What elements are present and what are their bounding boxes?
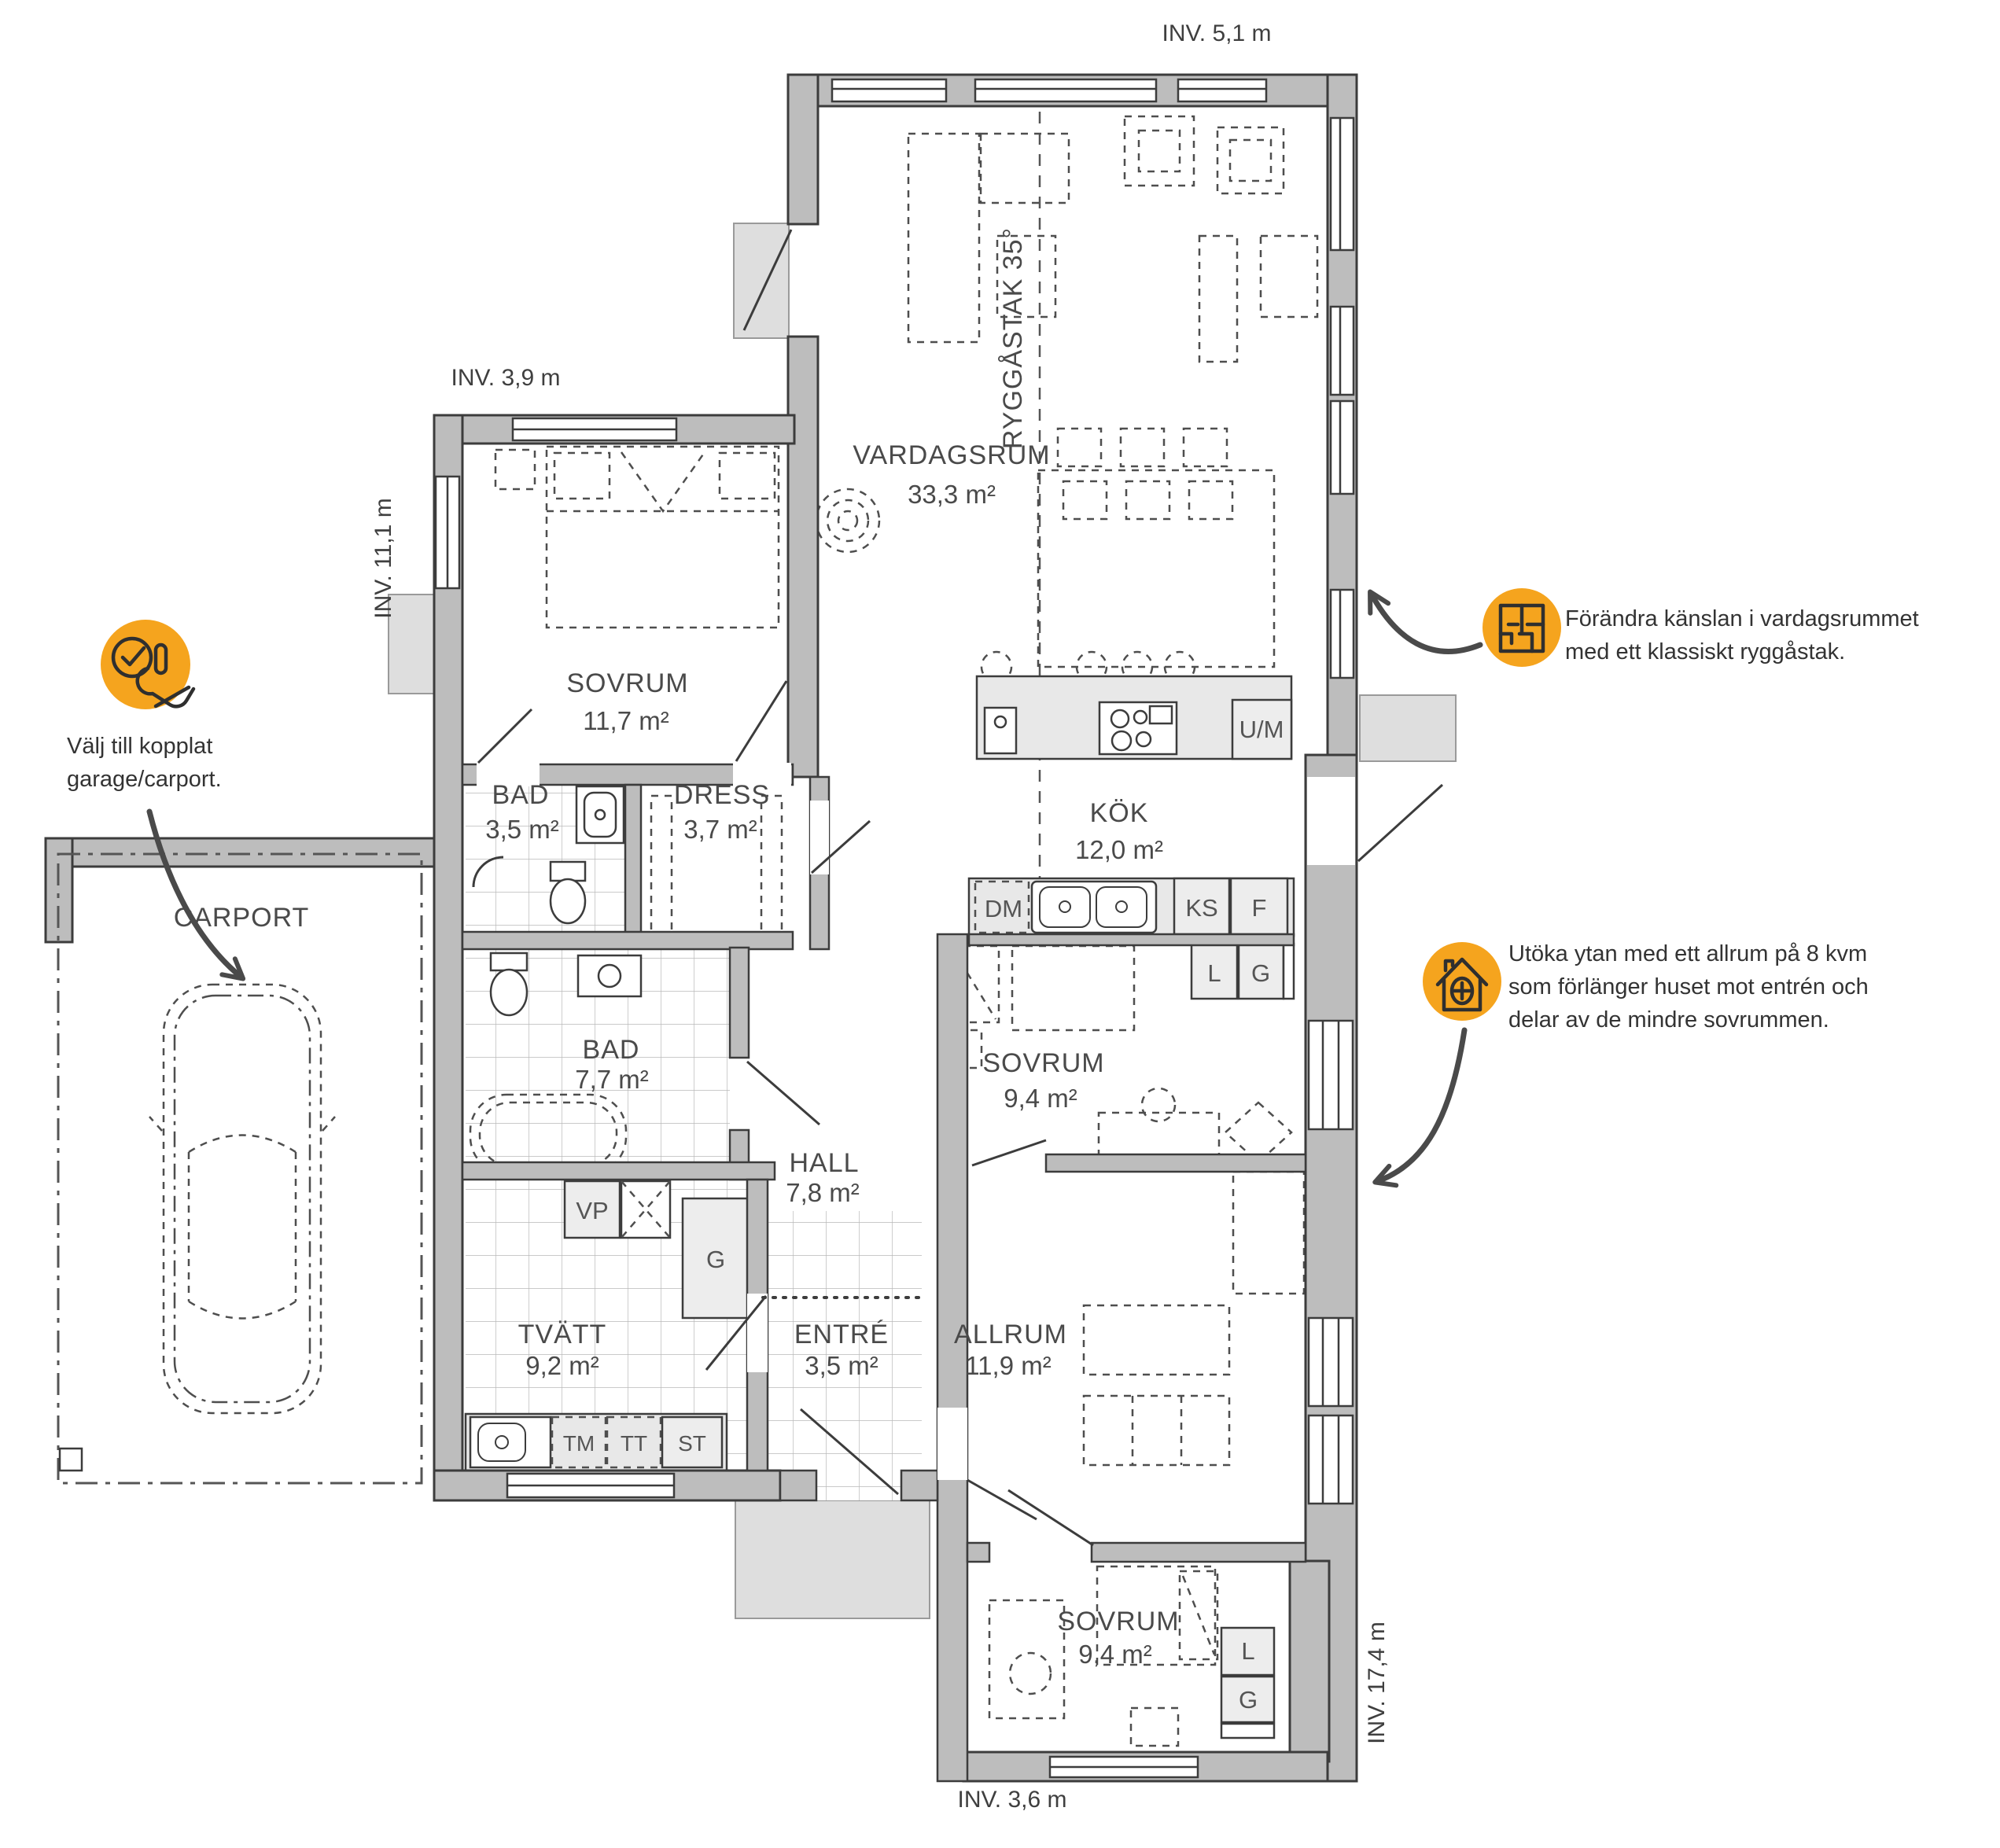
ridge-note-line2: med ett klassiskt ryggåstak. — [1565, 639, 1845, 664]
kitchen-island: U/M — [977, 652, 1291, 759]
allrum-furniture — [1084, 1172, 1304, 1465]
carport-boundary — [58, 854, 422, 1483]
car — [149, 985, 335, 1413]
dim-bottom: INV. 3,6 m — [958, 1787, 1067, 1813]
dim-right: INV. 17,4 m — [1364, 1622, 1390, 1744]
floorplan-page: U/M DM KS F L G — [0, 0, 2000, 1848]
entre-label: ENTRÉ — [794, 1320, 889, 1349]
sovrum1-label: SOVRUM — [566, 668, 688, 698]
l-label: L — [1207, 959, 1221, 987]
dining-table — [1038, 470, 1274, 667]
tvatt-label: TVÄTT — [518, 1320, 607, 1349]
bad2-area: 7,7 m² — [575, 1065, 649, 1094]
entre-area: 3,5 m² — [805, 1351, 878, 1380]
allrum-area: 11,9 m² — [965, 1351, 1051, 1380]
tm-label: TM — [563, 1431, 595, 1456]
carport-arrow — [149, 812, 241, 977]
toilet — [491, 953, 527, 970]
dim-wing-top: INV. 3,9 m — [451, 365, 561, 391]
bad1-label: BAD — [492, 780, 550, 810]
allrum-note: Utöka ytan med ett allrum på 8 kvm som f… — [1378, 941, 1869, 1181]
allrum-label: ALLRUM — [954, 1320, 1067, 1349]
dress-area: 3,7 m² — [683, 815, 757, 844]
armchair — [1225, 1103, 1291, 1162]
dim-top: INV. 5,1 m — [1162, 20, 1272, 46]
tvatt-area: 9,2 m² — [525, 1351, 599, 1380]
g-label: G — [1239, 1686, 1258, 1714]
kok-label: KÖK — [1090, 798, 1149, 828]
fireplace-icon — [838, 511, 857, 530]
f-label: F — [1252, 894, 1267, 922]
sofa — [1084, 1396, 1229, 1465]
allrum-arrow — [1378, 1030, 1464, 1181]
desk — [989, 1600, 1064, 1718]
carport-note-line1: Välj till kopplat — [67, 734, 212, 759]
kitchen-sink — [1032, 882, 1156, 933]
bedroom3-door — [1008, 1490, 1093, 1545]
dm-label: DM — [985, 895, 1022, 922]
vp-label: VP — [576, 1197, 608, 1224]
floorplan-drawing: U/M DM KS F L G — [0, 0, 2000, 1848]
sovrum2-area: 9,4 m² — [1004, 1084, 1077, 1113]
entrance-porch — [735, 1500, 930, 1618]
bedroom2-door — [972, 1140, 1046, 1165]
carport-note-line2: garage/carport. — [67, 767, 222, 792]
g-label: G — [706, 1246, 725, 1273]
ridge-note-line1: Förändra känslan i vardagsrummet — [1565, 606, 1919, 631]
dress-label: DRESS — [674, 780, 770, 810]
tt-label: TT — [621, 1431, 647, 1456]
sovrum1-area: 11,7 m² — [583, 706, 669, 735]
allrum-note-line1: Utöka ytan med ett allrum på 8 kvm — [1508, 941, 1867, 966]
l-label: L — [1241, 1637, 1254, 1665]
kok-area: 12,0 m² — [1075, 835, 1163, 864]
sovrum3-area: 9,4 m² — [1078, 1640, 1152, 1669]
laundry-sink — [470, 1417, 551, 1467]
bad1-area: 3,5 m² — [485, 815, 559, 844]
hall-label: HALL — [789, 1148, 859, 1178]
sovrum3-label: SOVRUM — [1057, 1607, 1179, 1636]
carport — [46, 838, 437, 1483]
ridge-arrow — [1372, 595, 1480, 651]
vardagsrum-area: 33,3 m² — [908, 480, 996, 509]
allrum-note-line3: delar av de mindre sovrummen. — [1508, 1007, 1829, 1033]
sovrum2-label: SOVRUM — [982, 1048, 1104, 1078]
hall-area: 7,8 m² — [786, 1178, 860, 1207]
stove — [1099, 702, 1177, 754]
double-bed — [547, 447, 779, 628]
ridge-label: RYGGÅSTAK 35° — [998, 227, 1028, 449]
kitchen-counter: DM KS F — [969, 878, 1294, 936]
bad2-label: BAD — [583, 1035, 640, 1065]
ks-label: KS — [1185, 894, 1217, 922]
master-bedroom-furniture — [495, 447, 779, 628]
allrum-note-line2: som förlänger huset mot entrén och — [1508, 974, 1869, 999]
um-label: U/M — [1239, 716, 1284, 743]
bed — [1012, 946, 1134, 1030]
toilet — [551, 862, 585, 881]
st-label: ST — [678, 1431, 706, 1456]
tiled-floors — [466, 785, 922, 1500]
g-label: G — [1251, 959, 1270, 987]
ridge-note: Förändra känslan i vardagsrummet med ett… — [1372, 588, 1919, 667]
dim-wing-left: INV. 11,1 m — [370, 498, 396, 618]
livingroom-furniture — [816, 116, 1317, 667]
